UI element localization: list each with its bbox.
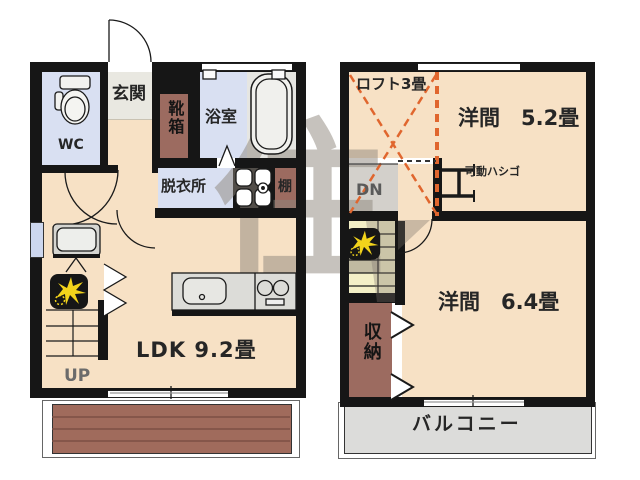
label-ladder: 可動ハシゴ [465, 166, 520, 179]
closet-door-gap [392, 303, 402, 397]
wall-2f-stairs-right [395, 221, 405, 305]
wall-hall-top [42, 165, 118, 173]
side-window [30, 222, 44, 258]
wall-2f-mid-left [349, 211, 398, 221]
wall-2f-right [586, 62, 595, 407]
label-dn: DN [356, 181, 383, 199]
wall-closet-top [340, 293, 395, 303]
wall-wc-right [100, 62, 108, 166]
floorplan-page: { "floor1": { "wc": "WC", "entrance": "玄… [0, 0, 640, 480]
wall-1f-right [296, 62, 306, 398]
entrance-opening [108, 62, 152, 72]
loft-edge-band [398, 158, 436, 164]
label-shoe-box: 靴箱 [165, 100, 183, 136]
label-balcony: バルコニー [412, 414, 522, 436]
room52-window [418, 63, 520, 71]
label-bathroom: 浴室 [205, 108, 237, 126]
label-dressing: 脱衣所 [161, 178, 206, 195]
label-room-5-2: 洋間 5.2畳 [458, 106, 579, 130]
label-closet: 収納 [360, 322, 381, 362]
balcony-sliding-door [424, 399, 524, 407]
terrace-sliding-door [108, 390, 228, 398]
label-loft: ロフト3畳 [356, 76, 426, 93]
wall-stairs-right [98, 300, 108, 360]
wall-2f-mid-right [432, 211, 586, 221]
label-up: UP [64, 367, 90, 387]
label-ldk: LDK 9.2畳 [136, 338, 257, 362]
wall-under-bath [200, 158, 306, 168]
wall-2f-left [340, 62, 349, 407]
ladder-post [433, 158, 442, 218]
entrance-door-arc [109, 20, 151, 62]
label-wc: WC [58, 137, 84, 153]
wall-dressing-bottom [155, 208, 306, 218]
label-shelf: 棚 [278, 179, 292, 195]
label-entrance: 玄関 [112, 85, 146, 105]
bathroom-window [202, 63, 292, 71]
terrace-deck [52, 404, 292, 454]
label-room-6-4: 洋間 6.4畳 [438, 290, 559, 314]
bath-door-opening [217, 158, 235, 168]
